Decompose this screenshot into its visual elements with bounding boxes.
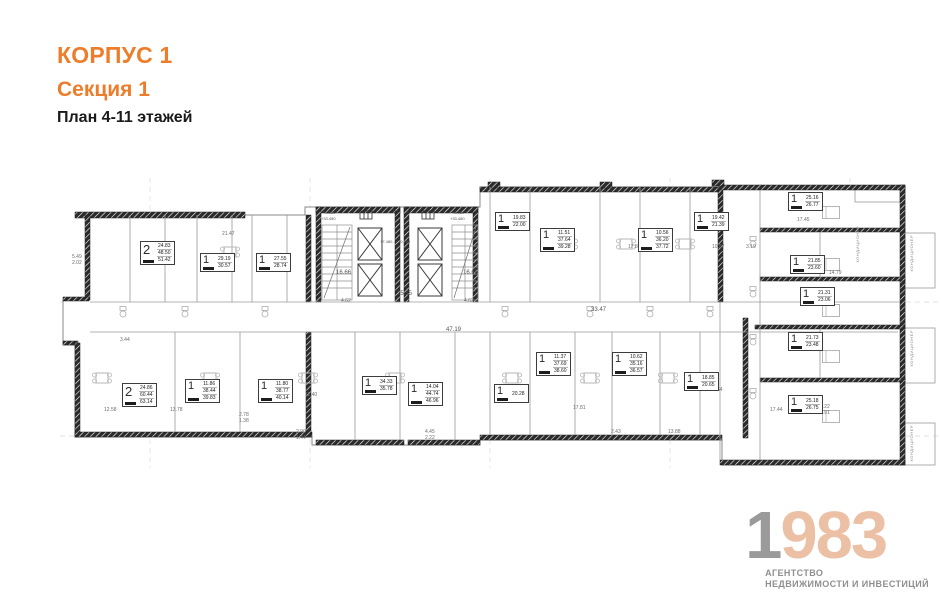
ac-unit-label: КОНДИЦИОНЕР xyxy=(909,425,914,462)
finish-tag xyxy=(365,390,376,393)
apartment-label: 119.8322.00 xyxy=(495,212,530,231)
floor-plan: 224.8348.5051.42129.1930.57127.5528.7411… xyxy=(60,178,940,468)
elevation-mark: +33.480 xyxy=(321,217,336,222)
apartment-type: 1 xyxy=(365,378,376,389)
apartment-areas: 34.3335.78 xyxy=(378,377,396,394)
dimension-label: 4.62 xyxy=(464,299,474,304)
apartment-type: 1 xyxy=(793,257,804,268)
apartment-type: 1 xyxy=(497,386,508,397)
dimension-label: 2.43 xyxy=(611,430,621,435)
finish-tag xyxy=(498,226,509,229)
apartment-type: 1 xyxy=(543,230,554,241)
apartment-label: 111.3737.6938.60 xyxy=(536,352,571,376)
apartment-type: 1 xyxy=(203,255,214,266)
ac-unit-label: КОНДИЦИОНЕР xyxy=(909,235,914,272)
elevation-mark: +33.480 xyxy=(450,217,465,222)
dimension-label: 14.79 xyxy=(829,271,842,276)
dimension-label: 10.87 xyxy=(712,245,725,250)
finish-tag xyxy=(259,267,270,270)
apartment-areas: 11.5137.6439.28 xyxy=(556,229,574,251)
apartment-areas: 24.8348.5051.42 xyxy=(156,242,174,264)
dimension-label: 16.66 xyxy=(463,271,478,276)
apartment-type: 1 xyxy=(641,230,652,241)
apartment-label: 121.8523.60 xyxy=(790,255,825,274)
finish-tag xyxy=(641,247,652,250)
finish-tag xyxy=(497,398,508,401)
dimension-label: 13.78 xyxy=(170,408,183,413)
apartment-type: 1 xyxy=(791,334,802,345)
apartment-label: 125.1626.77 xyxy=(788,192,823,211)
plan-title: План 4-11 этажей xyxy=(57,109,192,127)
finish-tag xyxy=(791,206,802,209)
finish-tag xyxy=(411,401,422,404)
elevation-mark: +8.880 xyxy=(452,211,464,216)
apartment-areas: 11.8038.7740.14 xyxy=(274,380,292,402)
apartment-areas: 21.7323.48 xyxy=(804,333,822,350)
apartment-type: 1 xyxy=(791,194,802,205)
dimension-label: 3.19 xyxy=(746,245,756,250)
elevation-mark: +7.480...+30.280 xyxy=(380,240,410,245)
finish-tag xyxy=(203,267,214,270)
apartment-areas: 18.8520.65 xyxy=(700,373,718,390)
finish-tag xyxy=(125,402,136,405)
apartment-label: 121.7323.48 xyxy=(788,332,823,351)
logo-year-gray: 1 xyxy=(745,498,780,573)
dimension-label: 2.22 xyxy=(425,436,435,441)
dimension-label: 13.88 xyxy=(668,430,681,435)
apartment-type: 1 xyxy=(687,374,698,385)
ac-unit-label: КОНДИЦИОНЕР xyxy=(855,226,860,263)
dimension-label: 2.02 xyxy=(72,261,82,266)
dimension-label: 21.47 xyxy=(222,232,235,237)
apartment-type: 2 xyxy=(143,243,154,256)
apartment-areas: 24.8660.4463.14 xyxy=(138,384,156,406)
apartment-type: 2 xyxy=(125,385,136,398)
apartment-label: 111.8638.4439.83 xyxy=(185,379,220,403)
apartment-type: 1 xyxy=(259,255,270,266)
dimension-label: 1.44 xyxy=(296,436,306,441)
building-title: КОРПУС 1 xyxy=(57,42,192,69)
finish-tag xyxy=(803,301,814,304)
finish-tag xyxy=(615,371,626,374)
apartment-label: 224.8348.5051.42 xyxy=(140,241,175,265)
apartment-type: 1 xyxy=(188,381,199,392)
apartment-label: 120.28 xyxy=(494,384,529,403)
apartment-areas: 27.5528.74 xyxy=(272,254,290,271)
apartment-label: 121.3123.06 xyxy=(800,287,835,306)
apartment-type: 1 xyxy=(261,381,272,392)
dimension-label: 25.35 xyxy=(397,292,412,297)
apartment-type: 1 xyxy=(498,214,509,225)
apartment-type: 1 xyxy=(615,354,626,365)
finish-tag xyxy=(261,398,272,401)
dimension-label: 4.62 xyxy=(341,299,351,304)
finish-tag xyxy=(539,371,550,374)
apartment-label: 110.6235.1636.57 xyxy=(612,352,647,376)
dimension-label: 47.19 xyxy=(446,328,461,333)
apartment-type: 1 xyxy=(791,397,802,408)
apartment-areas: 11.8638.4439.83 xyxy=(201,380,219,402)
finish-tag xyxy=(687,386,698,389)
finish-tag xyxy=(697,226,708,229)
apartment-areas: 21.3123.06 xyxy=(816,288,834,305)
apartment-label: 111.8038.7740.14 xyxy=(258,379,293,403)
agency-logo: 1983 АГЕНТСТВО НЕДВИЖИМОСТИ И ИНВЕСТИЦИЙ xyxy=(745,506,929,590)
finish-tag xyxy=(793,269,804,272)
apartment-label: 125.1826.75 xyxy=(788,395,823,414)
finish-tag xyxy=(188,398,199,401)
dimension-label: 16.66 xyxy=(336,271,351,276)
dimension-label: 17.81 xyxy=(573,406,586,411)
apartment-label: 127.5528.74 xyxy=(256,253,291,272)
apartment-type: 1 xyxy=(411,384,422,395)
apartment-label: 134.3335.78 xyxy=(362,376,397,395)
apartment-areas: 21.8523.60 xyxy=(806,256,824,273)
apartment-areas: 19.4221.39 xyxy=(710,213,728,230)
logo-year: 1983 xyxy=(745,506,929,566)
apartment-areas: 29.1930.57 xyxy=(216,254,234,271)
apartment-areas: 14.0444.7446.96 xyxy=(424,383,442,405)
dimension-label: 33.47 xyxy=(591,308,606,313)
apartment-label: 129.1930.57 xyxy=(200,253,235,272)
apartment-areas: 25.1826.75 xyxy=(804,396,822,413)
logo-year-peach: 983 xyxy=(780,498,886,573)
dimension-label: 11.40 xyxy=(305,393,317,398)
title-block: КОРПУС 1 Секция 1 План 4-11 этажей xyxy=(57,42,192,127)
apartment-areas: 10.6235.1636.57 xyxy=(628,353,646,375)
logo-subtitle-line2: НЕДВИЖИМОСТИ И ИНВЕСТИЦИЙ xyxy=(765,579,929,590)
finish-tag xyxy=(543,247,554,250)
apartment-label: 119.4221.39 xyxy=(694,212,729,231)
elevation-mark: +8.880 xyxy=(323,211,335,216)
dimension-label: 3.44 xyxy=(120,338,130,343)
apartment-areas: 20.28 xyxy=(510,385,528,402)
apartment-areas: 25.1626.77 xyxy=(804,193,822,210)
apartment-areas: 11.3737.6938.60 xyxy=(552,353,570,375)
dimension-label: 1.38 xyxy=(239,419,249,424)
dimension-label: 12.58 xyxy=(104,408,117,413)
apartment-label: 110.5636.2037.72 xyxy=(638,228,673,252)
apartment-areas: 19.8322.00 xyxy=(511,213,529,230)
finish-tag xyxy=(791,346,802,349)
apartment-type: 1 xyxy=(697,214,708,225)
dimension-label: 17.45 xyxy=(797,218,810,223)
dimension-label: 17.44 xyxy=(770,408,783,413)
apartment-type: 1 xyxy=(803,289,814,300)
section-title: Секция 1 xyxy=(57,78,192,102)
ac-unit-label: КОНДИЦИОНЕР xyxy=(909,330,914,367)
apartment-label: 111.5137.6439.28 xyxy=(540,228,575,252)
finish-tag xyxy=(143,260,154,263)
apartment-areas: 10.5636.2037.72 xyxy=(654,229,672,251)
apartment-label: 114.0444.7446.96 xyxy=(408,382,443,406)
apartment-type: 1 xyxy=(539,354,550,365)
apartment-label: 224.8660.4463.14 xyxy=(122,383,157,407)
apartment-label: 118.8520.65 xyxy=(684,372,719,391)
finish-tag xyxy=(791,409,802,412)
